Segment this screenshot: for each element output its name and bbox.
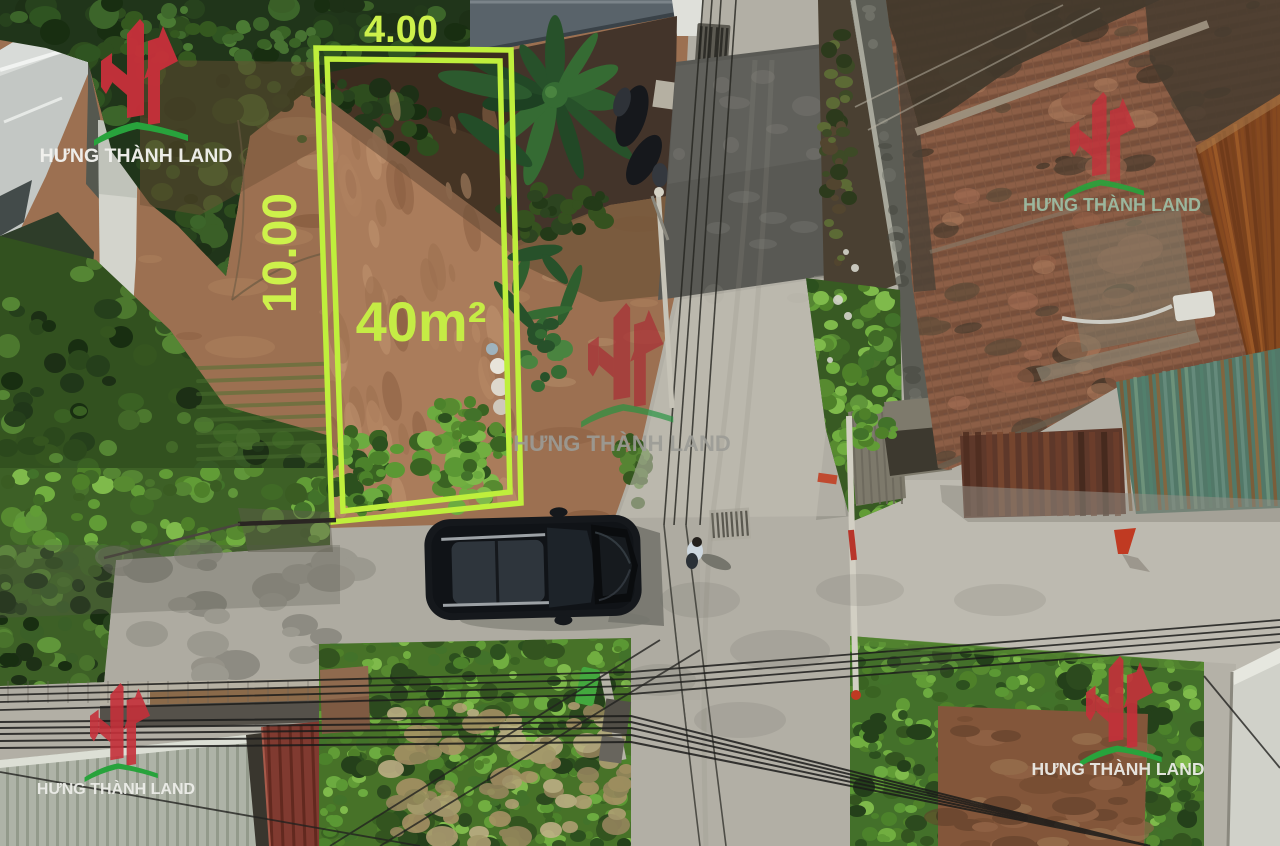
- svg-text:HƯNG THÀNH LAND: HƯNG THÀNH LAND: [1023, 194, 1201, 215]
- svg-text:4.00: 4.00: [364, 9, 438, 51]
- svg-text:10.00: 10.00: [254, 193, 307, 313]
- svg-text:HƯNG THÀNH LAND: HƯNG THÀNH LAND: [40, 144, 233, 167]
- svg-text:HƯNG THÀNH LAND: HƯNG THÀNH LAND: [513, 431, 730, 456]
- svg-text:HƯNG THÀNH LAND: HƯNG THÀNH LAND: [37, 779, 195, 798]
- svg-text:HƯNG THÀNH LAND: HƯNG THÀNH LAND: [1032, 758, 1205, 779]
- svg-text:40m²: 40m²: [356, 290, 487, 353]
